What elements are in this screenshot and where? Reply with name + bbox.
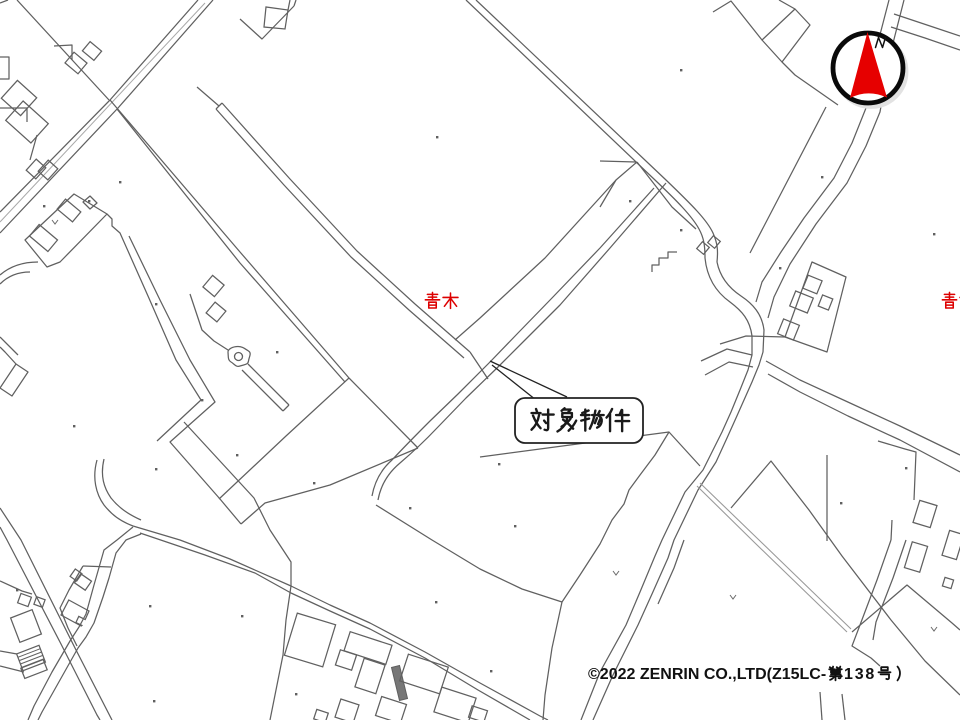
svg-text:©2022 ZENRIN CO.,LTD(Z15LC-: ©2022 ZENRIN CO.,LTD(Z15LC- — [588, 666, 826, 683]
svg-text:138: 138 — [844, 666, 876, 683]
